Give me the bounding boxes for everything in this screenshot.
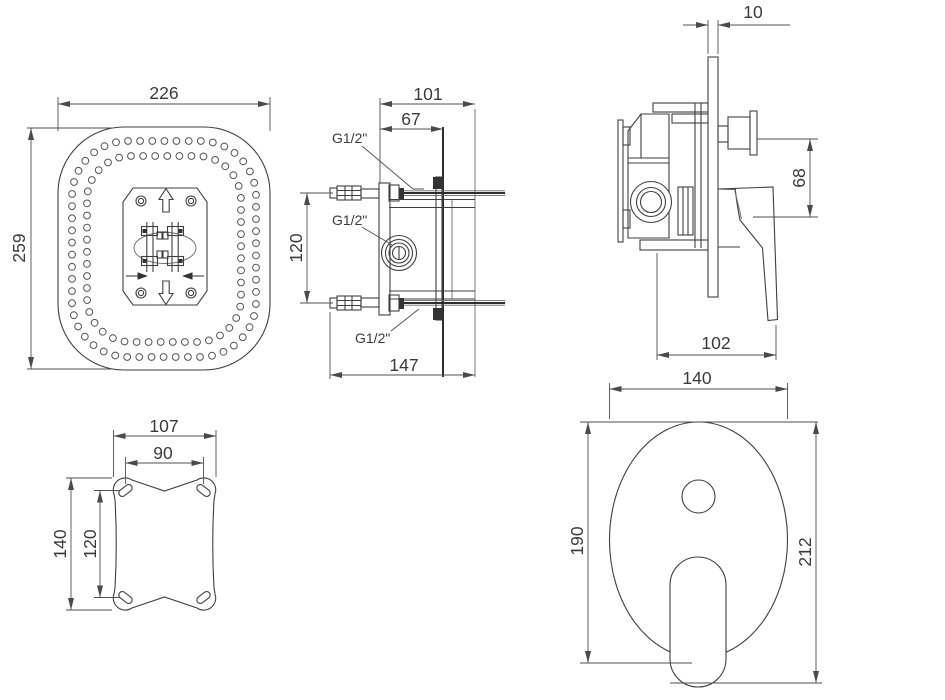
dim-outer-width-label: 107 [149,416,178,436]
nozzle-hole [91,319,98,326]
nozzle-hole [101,143,108,150]
nozzle-hole [160,354,167,361]
dimension-190: 190 [567,422,588,663]
arrow-left-icon [182,272,204,280]
mounting-plate-view: 107 90 140 120 [50,416,216,610]
nozzle-hole [231,342,238,349]
nozzle-hole [238,195,245,202]
valve-body [628,103,708,250]
shower-head-top-view: 226 259 [9,83,270,370]
nozzle-hole [197,354,204,361]
nozzle-hole [100,348,107,355]
nozzle-hole [133,339,140,346]
center-connection-port [382,236,417,271]
nozzle-hole [116,154,123,161]
nozzle-hole [140,153,147,160]
nozzle-hole [84,200,91,207]
nozzle-hole [253,264,260,271]
nozzle-hole [90,342,97,349]
nozzle-hole [84,224,91,231]
nozzle-hole [157,339,164,346]
nozzle-hole [148,354,155,361]
nozzle-hole [69,215,76,222]
mixer-valve-side-view: 10 68 102 [618,2,818,360]
nozzle-hole [251,179,258,186]
nozzle-hole [69,263,76,270]
dimension-120-ports: 120 [286,193,333,303]
nozzle-hole [99,328,106,335]
center-mounting-bracket [123,188,207,305]
thread-top-label: G1/2" [332,130,367,146]
nozzle-hole [209,139,216,146]
nozzle-hole [124,354,131,361]
nozzle-hole [176,153,183,160]
mixer-handle-side [718,187,778,321]
nozzle-hole [238,231,245,238]
nozzle-hole [239,334,246,341]
nozzle-hole [161,138,168,145]
nozzle-hole [185,138,192,145]
nozzle-hole [238,291,245,298]
thread-middle-label: G1/2" [332,212,367,228]
arrow-down-icon [159,281,173,305]
nozzle-hole [253,191,260,198]
nozzle-hole [253,252,260,259]
nozzle-hole [212,157,219,164]
nozzle-hole [69,191,76,198]
diverter-knob [718,111,757,155]
nozzle-hole [75,167,82,174]
nozzle-hole [69,227,76,234]
nozzle-hole [84,212,91,219]
nozzle-hole [69,300,76,307]
dim-projection-label: 67 [401,109,420,129]
nozzle-hole [220,348,227,355]
nozzle-hole [81,333,88,340]
dimension-140-trim: 140 [610,368,788,419]
diverter-button [682,480,715,513]
nozzle-hole [91,149,98,156]
dim-handle-depth-label: 102 [701,333,730,353]
mounting-rail-right [163,222,184,272]
dim-total-height-label: 212 [795,537,815,566]
nozzle-hole [84,273,91,280]
nozzle-hole [86,309,93,316]
slot-hole-top-right [195,483,211,498]
nozzle-hole [200,153,207,160]
nozzle-hole [113,139,120,146]
dimension-101: 101 [380,84,475,183]
mounting-rail-left [142,222,163,272]
nozzle-hole [105,159,112,166]
nozzle-hole [84,188,91,195]
dim-depth-label: 101 [413,84,442,104]
nozzle-hole [246,324,253,331]
nozzle-hole [69,251,76,258]
nozzle-hole [247,168,254,175]
nozzle-hole [69,239,76,246]
dimension-226: 226 [58,83,270,131]
nozzle-hole [70,312,77,319]
dim-port-spacing-label: 120 [286,233,306,262]
dimension-90: 90 [126,443,204,484]
nozzle-hole [173,138,180,145]
nozzle-hole [194,339,201,346]
nozzle-hole [149,138,156,145]
dim-handle-offset-label: 68 [789,168,809,187]
nozzle-hole [128,153,135,160]
nozzle-hole [164,153,171,160]
nozzle-hole [137,138,144,145]
trim-plate-edge [708,57,718,297]
dim-total-depth-label: 147 [389,355,418,375]
nozzle-hole [238,219,245,226]
dim-plate-width-label: 140 [682,368,711,388]
nozzle-hole [84,236,91,243]
thread-label-middle: G1/2" [332,212,392,245]
nozzle-hole [238,207,245,214]
nozzle-hole [84,285,91,292]
nozzle-hole [237,303,244,310]
nozzle-hole [121,338,128,345]
dim-outer-height-label: 140 [50,529,70,558]
nozzle-hole [253,240,260,247]
nozzle-hole [69,276,76,283]
nozzle-hole [125,138,132,145]
nozzle-hole [235,183,242,190]
dim-height-label: 259 [9,233,29,262]
nozzle-hole [226,325,233,332]
nozzle-hole [197,138,204,145]
nozzle-hole [233,315,240,322]
nozzle-hole [82,157,89,164]
nozzle-hole [206,337,213,344]
nozzle-hole [188,153,195,160]
nozzle-hole [84,297,91,304]
nozzle-hole [69,203,76,210]
inlet-fitting-bottom [330,295,505,311]
nozzle-hole [238,243,245,250]
nozzle-hole [251,313,258,320]
dimension-212: 212 [795,422,816,683]
dimension-67: 67 [380,109,443,129]
nozzle-hole [238,267,245,274]
arrow-up-icon [159,189,173,213]
nozzle-hole [145,339,152,346]
nozzle-hole [185,354,192,361]
thread-label-top: G1/2" [332,130,424,189]
nozzle-hole [231,150,238,157]
technical-drawing-page: 226 259 [0,0,945,700]
slot-hole-bottom-right [195,590,211,605]
nozzle-hole [238,255,245,262]
thread-bottom-label: G1/2" [355,330,390,346]
nozzle-hole [253,204,260,211]
nozzle-hole [71,179,78,186]
nozzle-hole [230,172,237,179]
back-bracket [618,120,623,242]
arrow-right-icon [126,272,148,280]
nozzle-hole [253,276,260,283]
mounting-plate-outline [113,478,215,610]
nozzle-hole [222,163,229,170]
dimension-10: 10 [683,2,790,54]
mixer-trim-front-view: 140 190 212 [567,368,822,687]
nozzle-hole [209,352,216,359]
dimension-259: 259 [9,128,114,369]
mixer-handle-front [670,557,726,687]
mounting-column [379,183,390,315]
nozzle-hole [221,143,228,150]
nozzle-hole [217,332,224,339]
nozzle-hole [172,354,179,361]
nozzle-hole [88,177,95,184]
dim-plate-thickness-label: 10 [743,2,763,22]
nozzle-hole [253,289,260,296]
nozzle-hole [253,216,260,223]
dim-slot-span-height-label: 120 [80,529,100,558]
technical-drawing: 226 259 [0,0,945,700]
nozzle-ring-inner [84,153,245,346]
nozzle-hole [69,288,76,295]
nozzle-hole [238,279,245,286]
nozzle-hole [110,335,117,342]
dim-slot-span-width-label: 90 [153,443,173,463]
dimension-120-plate: 120 [80,491,120,598]
nozzle-hole [240,158,247,165]
nozzle-hole [182,339,189,346]
nozzle-hole [253,301,260,308]
nozzle-hole [169,339,176,346]
nozzle-hole [112,352,119,359]
nozzle-hole [75,323,82,330]
nozzle-hole [84,261,91,268]
dim-plate-height-label: 190 [567,526,587,555]
nozzle-hole [152,153,159,160]
nozzle-hole [253,228,260,235]
shower-head-side-view: G1/2" G1/2" G1/2" 101 67 120 [286,84,505,379]
nozzle-hole [84,248,91,255]
nozzle-hole [136,354,143,361]
dim-width-label: 226 [149,83,178,103]
nozzle-hole [95,167,102,174]
inlet-fitting-top [330,185,505,201]
